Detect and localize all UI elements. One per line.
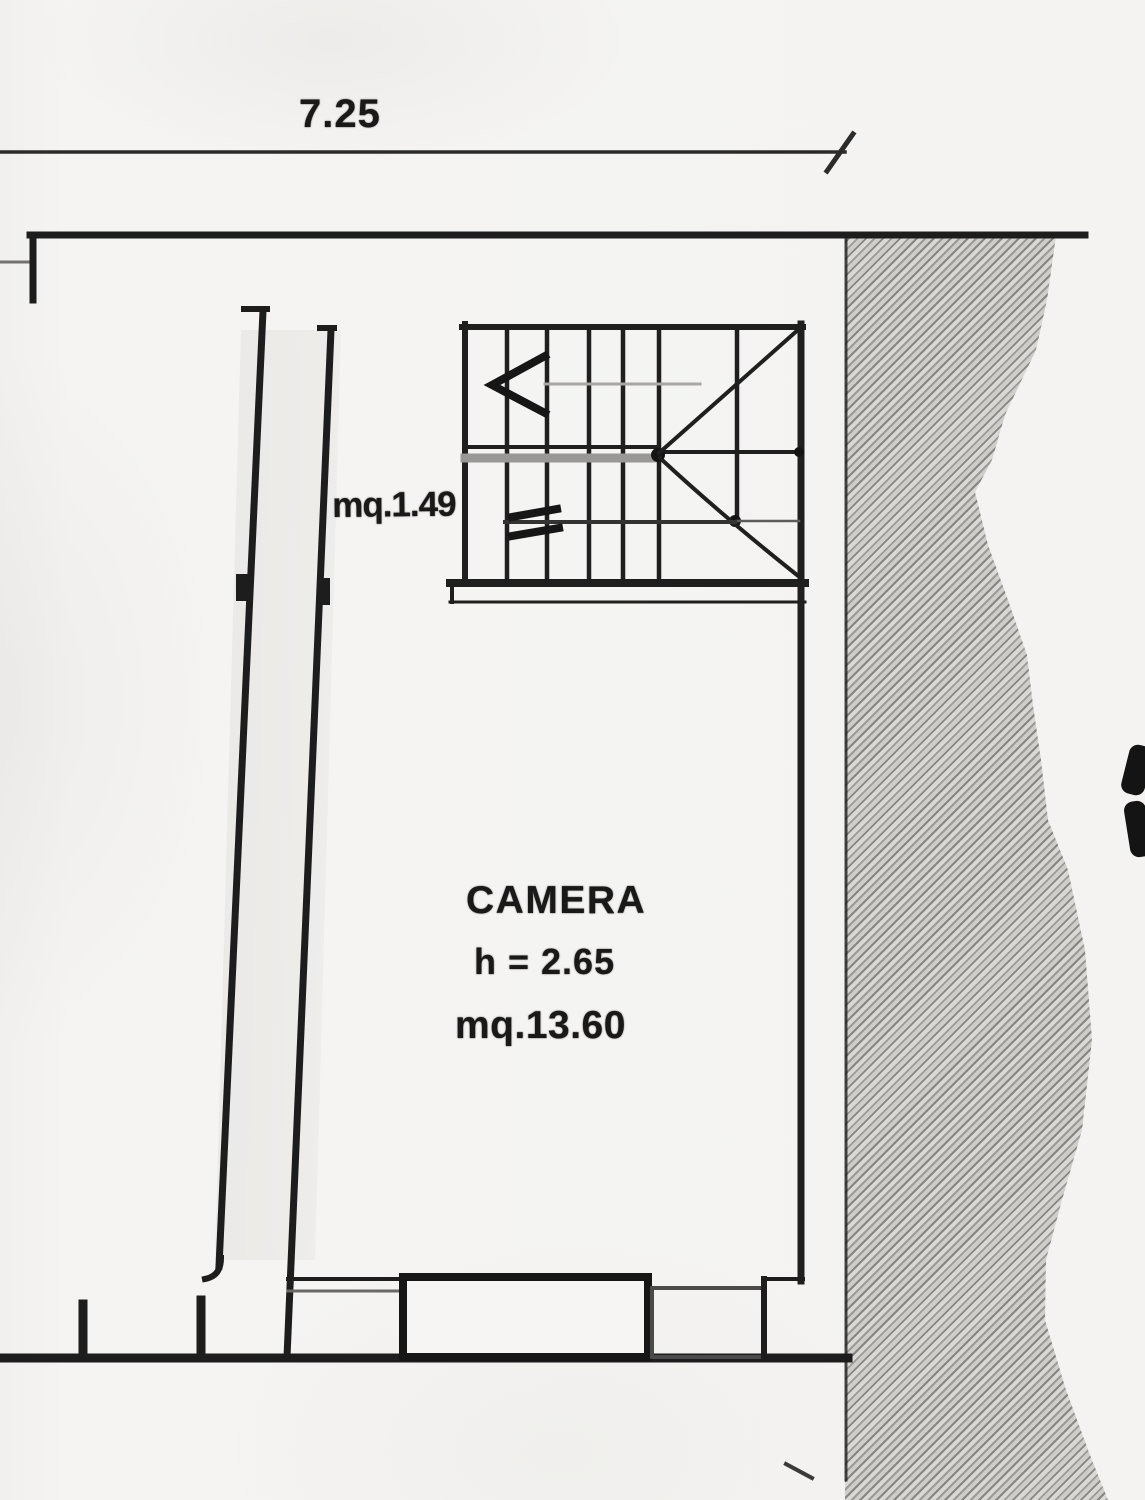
- staircase: [450, 324, 805, 1281]
- ground-tick-mark: [786, 1464, 812, 1478]
- room-height-label: h = 2.65: [474, 941, 615, 983]
- left-tilted-wall: [219, 311, 263, 1266]
- right-edge-clipped-dimension-fragments: [1119, 743, 1145, 859]
- right-tilted-wall: [287, 330, 331, 1357]
- right-wall-notch: [318, 578, 330, 605]
- floor-plan-scan: 7.25 mq.1.49 CAMERA h = 2.65 mq.13.60: [0, 0, 1145, 1500]
- glyph-fragment: [1123, 800, 1145, 859]
- room-name-label: CAMERA: [466, 879, 646, 923]
- plan-linework: [0, 0, 1145, 1500]
- glyph-fragment: [1119, 743, 1145, 797]
- wall-junction-node: [794, 447, 804, 457]
- bottom-wall-detail: [288, 1277, 812, 1478]
- room-area-label: mq.13.60: [455, 1004, 626, 1048]
- winder-diagonal-lower: [660, 458, 797, 575]
- top-width-dimension-label: 7.25: [299, 92, 381, 137]
- left-wall-notch: [236, 574, 248, 601]
- dimension-line-group: [0, 134, 853, 171]
- winder-diagonal-upper: [659, 329, 799, 453]
- window-opening-small: [652, 1288, 764, 1357]
- interior-walls: [205, 309, 334, 1357]
- window-opening-large: [403, 1277, 648, 1357]
- left-wall-bottom-curl: [205, 1258, 221, 1279]
- break-symbol-bar-1: [512, 509, 557, 517]
- stair-direction-arrow: [492, 356, 545, 413]
- break-symbol-bar-2: [512, 528, 559, 536]
- stairwell-area-label: mq.1.49: [332, 485, 456, 526]
